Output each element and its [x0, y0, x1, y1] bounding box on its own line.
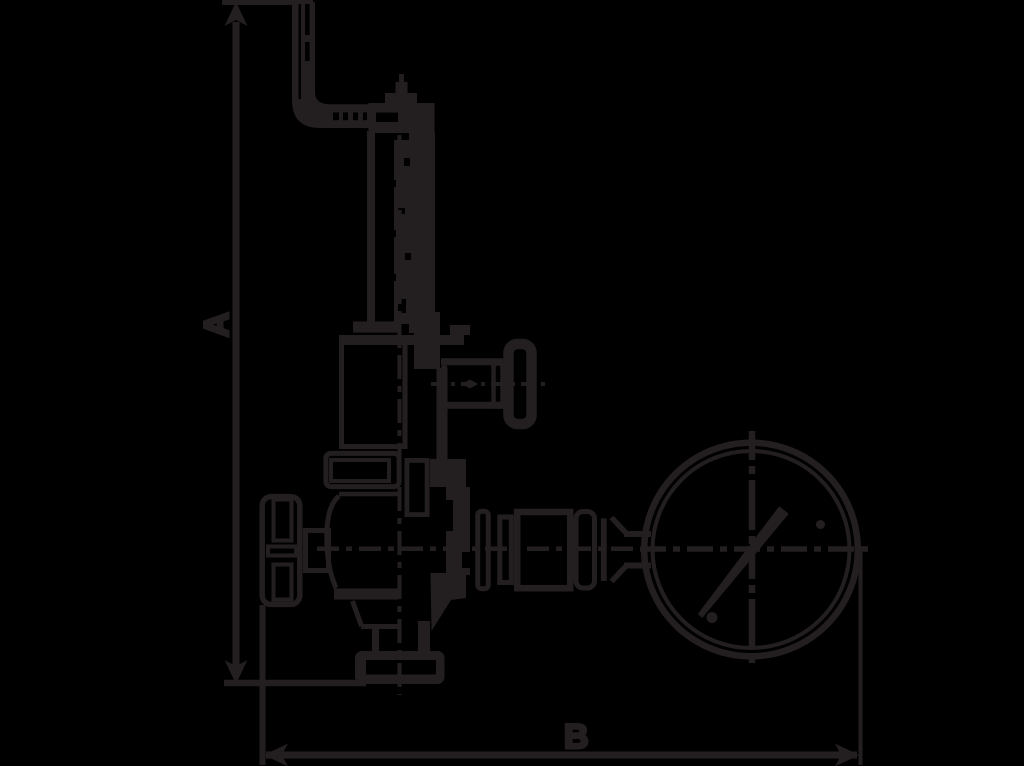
svg-text:B: B — [564, 718, 589, 756]
svg-text:A: A — [198, 312, 236, 337]
